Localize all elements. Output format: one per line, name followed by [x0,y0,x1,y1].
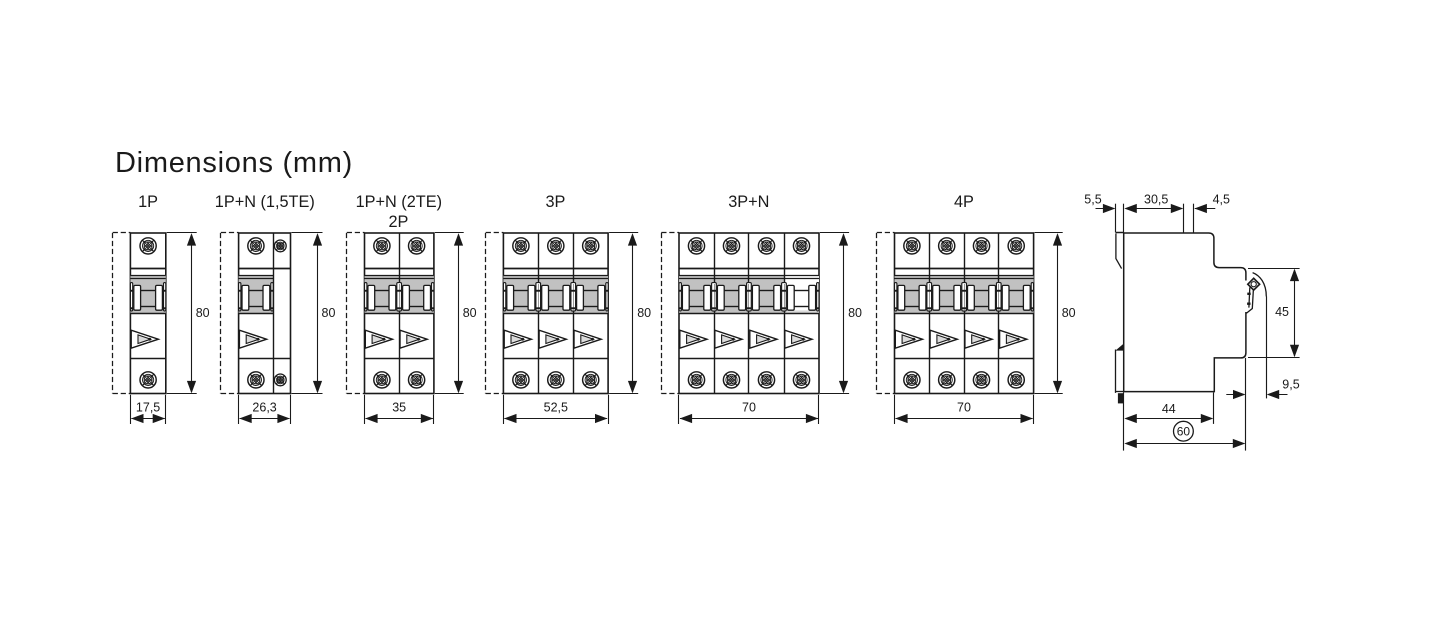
svg-text:30,5: 30,5 [1144,192,1168,206]
svg-text:5,5: 5,5 [1084,192,1101,206]
svg-text:4P: 4P [954,193,974,211]
svg-text:70: 70 [957,400,971,414]
svg-text:1P+N (1,5TE): 1P+N (1,5TE) [215,193,315,211]
svg-text:Dimensions (mm): Dimensions (mm) [115,147,353,179]
svg-text:80: 80 [848,306,862,320]
svg-text:60: 60 [1177,425,1191,439]
svg-text:4,5: 4,5 [1213,192,1230,206]
svg-text:80: 80 [463,306,477,320]
svg-text:3P: 3P [545,193,565,211]
svg-text:9,5: 9,5 [1282,378,1299,392]
svg-text:35: 35 [392,400,406,414]
svg-text:80: 80 [1062,306,1076,320]
svg-text:52,5: 52,5 [544,400,568,414]
svg-text:2P: 2P [388,213,408,231]
svg-text:80: 80 [196,306,210,320]
svg-text:44: 44 [1162,402,1176,416]
svg-text:1P: 1P [138,193,158,211]
svg-text:17,5: 17,5 [136,400,160,414]
svg-text:80: 80 [322,306,336,320]
svg-text:1P+N (2TE): 1P+N (2TE) [356,193,442,211]
svg-text:3P+N: 3P+N [728,193,769,211]
svg-text:45: 45 [1275,305,1289,319]
svg-text:70: 70 [742,400,756,414]
svg-text:80: 80 [637,306,651,320]
svg-text:26,3: 26,3 [252,400,276,414]
